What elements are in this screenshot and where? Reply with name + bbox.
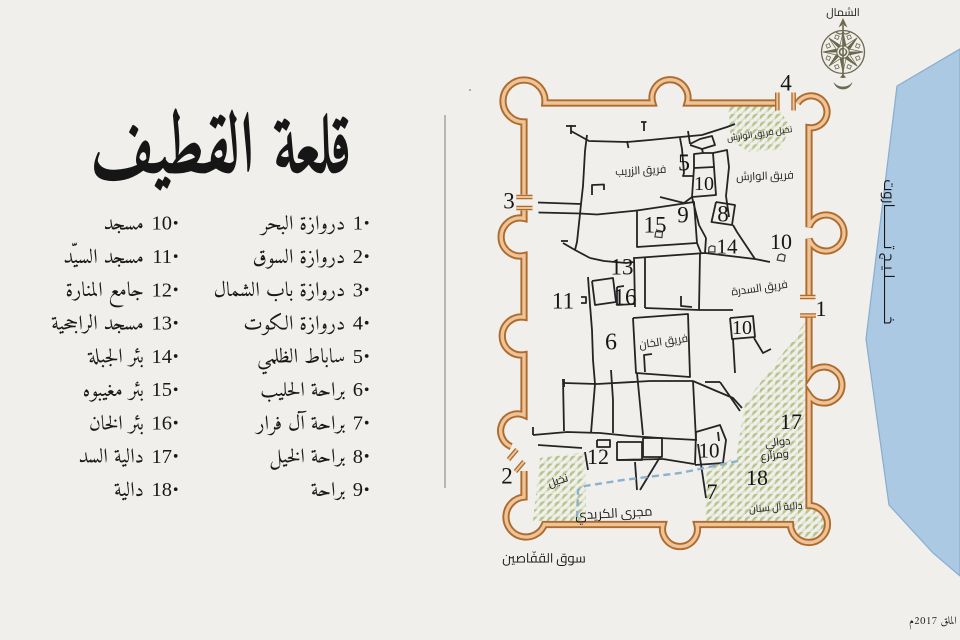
svg-text:10: 10 [699, 439, 720, 463]
svg-text:ومزارع: ومزارع [760, 444, 790, 467]
svg-text:10: 10 [770, 229, 792, 254]
svg-text:1: 1 [353, 213, 363, 235]
svg-text:12: 12 [587, 444, 609, 469]
svg-text:16: 16 [614, 284, 637, 309]
svg-text:دروازة البحر: دروازة البحر [259, 206, 345, 242]
svg-text:10: 10 [152, 213, 173, 235]
svg-text:9: 9 [677, 202, 689, 227]
svg-text:فريق الزريب: فريق الزريب [615, 160, 667, 183]
svg-text:براحة الحليب: براحة الحليب [260, 373, 345, 409]
svg-text:مسجد: مسجد [104, 206, 144, 242]
svg-text:4: 4 [353, 313, 363, 335]
svg-text:2: 2 [353, 246, 363, 268]
svg-text:7: 7 [707, 479, 718, 504]
svg-text:8: 8 [717, 201, 729, 226]
svg-text:17: 17 [780, 409, 802, 434]
svg-text:8: 8 [353, 446, 363, 468]
svg-text:4: 4 [780, 70, 792, 95]
svg-text:18: 18 [746, 465, 768, 490]
svg-text:مجرى الكريدي: مجرى الكريدي [575, 500, 653, 528]
svg-text:10: 10 [694, 173, 714, 195]
svg-text:11: 11 [152, 246, 172, 268]
svg-text:18: 18 [152, 479, 173, 501]
svg-text:13: 13 [611, 254, 634, 279]
svg-text:براحة الخيل: براحة الخيل [269, 440, 345, 476]
svg-text:فريق الوارش: فريق الوارش [736, 166, 794, 188]
svg-text:دالية آل سنان: دالية آل سنان [748, 496, 803, 519]
svg-text:براحة: براحة [311, 473, 346, 509]
svg-text:2: 2 [501, 463, 513, 488]
svg-text:الملق 2017م: الملق 2017م [909, 612, 957, 631]
svg-text:دروازة الكوت: دروازة الكوت [243, 306, 345, 342]
svg-text:15: 15 [152, 379, 173, 401]
svg-text:دروازة السوق: دروازة السوق [253, 240, 346, 276]
svg-text:مسجد السيّد: مسجد السيّد [63, 240, 144, 276]
svg-text:5: 5 [678, 151, 690, 177]
svg-text:3: 3 [503, 188, 515, 213]
svg-text:14: 14 [152, 346, 173, 368]
svg-text:14: 14 [717, 235, 739, 259]
svg-text:سوق القفّاصين: سوق القفّاصين [502, 547, 585, 571]
svg-text:خــــــــــلـيـج تــــــــــار: خــــــــــلـيـج تــــــــــاروت [875, 180, 904, 325]
svg-text:6: 6 [605, 330, 617, 356]
svg-text:جامع المنارة: جامع المنارة [66, 273, 144, 309]
svg-text:13: 13 [152, 313, 173, 335]
svg-text:9: 9 [353, 479, 363, 501]
svg-text:10: 10 [732, 317, 752, 339]
svg-text:1: 1 [816, 296, 827, 321]
svg-text:5: 5 [353, 346, 363, 368]
svg-text:17: 17 [152, 446, 173, 468]
svg-text:15: 15 [644, 212, 667, 237]
svg-text:ساباط الظلمي: ساباط الظلمي [257, 340, 345, 376]
svg-text:براحة آل فرار: براحة آل فرار [254, 406, 345, 442]
svg-text:بئر الخان: بئر الخان [89, 406, 144, 442]
svg-text:3: 3 [353, 279, 363, 301]
svg-text:7: 7 [353, 412, 363, 434]
svg-text:قلعة القطيف: قلعة القطيف [90, 76, 352, 226]
svg-text:6: 6 [353, 379, 363, 401]
svg-text:مسجد الراجحية: مسجد الراجحية [51, 306, 144, 342]
svg-text:دالية السد: دالية السد [79, 440, 144, 476]
svg-text:بئر الجبلة: بئر الجبلة [87, 340, 144, 376]
svg-text:11: 11 [552, 288, 574, 313]
svg-text:16: 16 [152, 412, 173, 434]
svg-text:12: 12 [152, 279, 173, 301]
svg-text:دروازة باب الشمال: دروازة باب الشمال [214, 273, 346, 309]
svg-text:بئر مغيبوه: بئر مغيبوه [83, 373, 144, 409]
svg-text:دالية: دالية [114, 473, 144, 509]
